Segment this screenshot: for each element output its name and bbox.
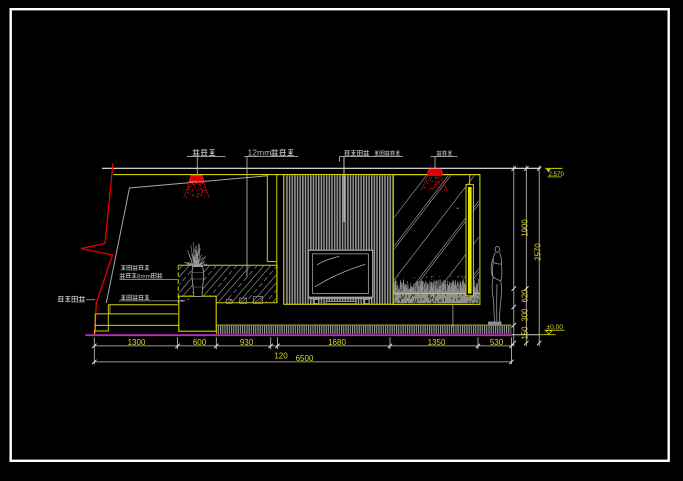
svg-text:150: 150 bbox=[520, 326, 529, 340]
svg-text:930: 930 bbox=[240, 338, 254, 347]
svg-text:620: 620 bbox=[520, 289, 529, 303]
svg-text:300: 300 bbox=[520, 308, 529, 322]
svg-text:2570: 2570 bbox=[533, 243, 542, 261]
svg-text:1350: 1350 bbox=[428, 338, 446, 347]
svg-text:600: 600 bbox=[193, 338, 207, 347]
svg-text:1300: 1300 bbox=[128, 338, 146, 347]
svg-text:6500: 6500 bbox=[296, 354, 314, 363]
svg-text:1680: 1680 bbox=[328, 338, 346, 347]
svg-text:12mm: 12mm bbox=[248, 148, 272, 158]
svg-text:120: 120 bbox=[274, 351, 288, 360]
svg-text:530: 530 bbox=[490, 338, 504, 347]
svg-text:1900: 1900 bbox=[520, 219, 529, 237]
